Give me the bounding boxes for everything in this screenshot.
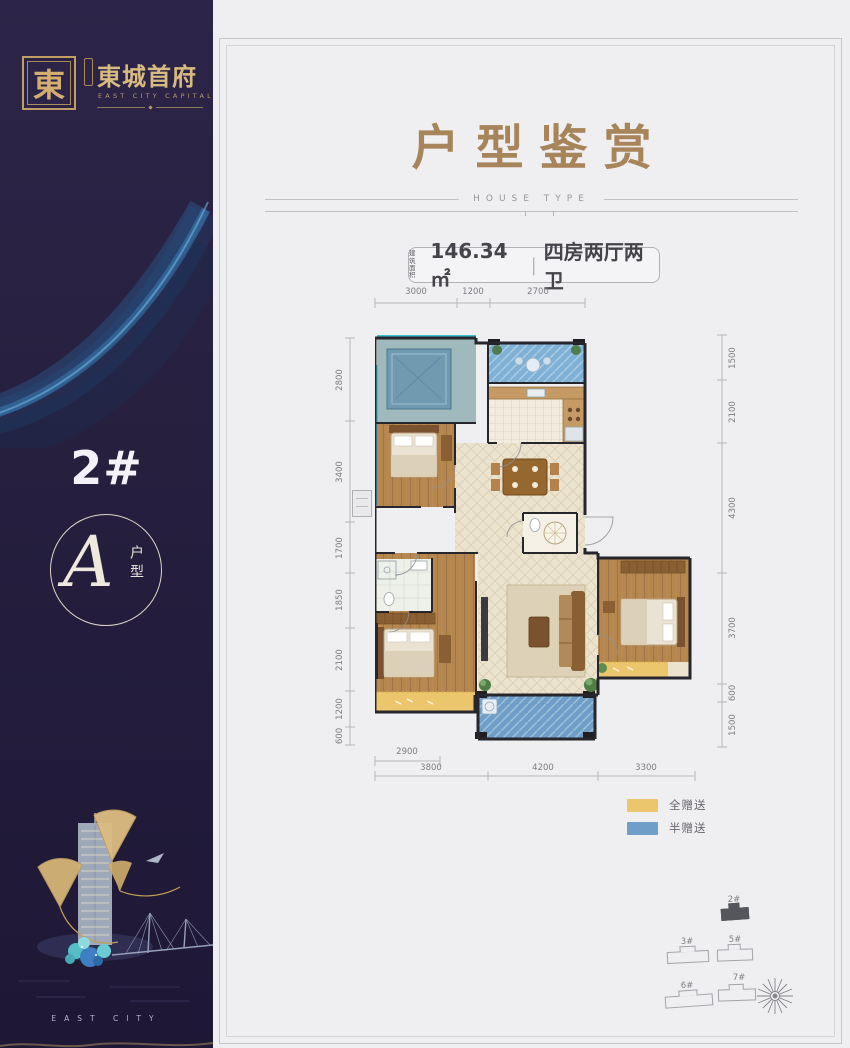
dim-label: 1200 xyxy=(335,698,345,720)
layout-description: 四房两厅两卫 xyxy=(544,236,659,294)
entry-door-arc xyxy=(585,517,613,545)
dim-label: 600 xyxy=(728,685,738,701)
brand-name-en: EAST CITY CAPITAL xyxy=(98,92,214,100)
feather-art xyxy=(0,118,213,448)
legend-row-full-gift: 全赠送 xyxy=(627,797,707,813)
dim-label: 1200 xyxy=(462,287,484,297)
unit-type-badge: A 户型 xyxy=(50,514,162,626)
subtitle-line-left xyxy=(265,199,459,200)
room-master-suite xyxy=(376,553,475,692)
dim-label: 4200 xyxy=(532,763,554,773)
ac-unit xyxy=(352,490,372,517)
dim-label: 3300 xyxy=(635,763,657,773)
subtitle-tick xyxy=(553,211,554,216)
page-title: 户型鉴赏 xyxy=(213,108,850,178)
area-value: 146.34㎡ xyxy=(430,239,523,292)
dim-label: 3700 xyxy=(728,617,738,639)
dim-label: 2100 xyxy=(335,649,345,671)
dim-label: 1500 xyxy=(728,714,738,736)
legend-swatch-half xyxy=(627,822,658,835)
seal-character: 東 xyxy=(33,60,65,106)
brand-name: 東城首府 xyxy=(97,57,207,92)
seal-side-tag xyxy=(84,58,93,86)
brand-tagline-divider xyxy=(97,106,203,109)
site-building-6 xyxy=(665,993,714,1008)
dim-label: 600 xyxy=(335,728,345,744)
dim-label: 3000 xyxy=(405,287,427,297)
sidebar-footer-caption: EAST CITY xyxy=(0,1014,213,1023)
area-badge: 建筑 面积 146.34㎡ | 四房两厅两卫 xyxy=(408,247,660,283)
dim-label: 4300 xyxy=(728,497,738,519)
legend-label-half: 半赠送 xyxy=(669,820,707,836)
gift-area-full-left xyxy=(376,692,475,712)
subtitle-tick xyxy=(525,211,526,216)
subtitle-underline xyxy=(265,211,798,212)
footer-gold-wave xyxy=(0,1040,213,1048)
room-kitchen xyxy=(488,387,585,443)
site-building-label: 7# xyxy=(733,973,746,983)
dim-label: 2800 xyxy=(335,369,345,391)
area-separator: | xyxy=(531,255,537,276)
site-map: 2# 3# 5# 6# 7# xyxy=(653,882,823,1017)
sidebar: 東 東城首府 EAST CITY CAPITAL 2# A 户型 xyxy=(0,0,213,1048)
subtitle-row: HOUSE TYPE xyxy=(265,194,798,204)
area-prefix-line2: 面积 xyxy=(409,265,423,280)
poster-root: 東 東城首府 EAST CITY CAPITAL 2# A 户型 xyxy=(0,0,850,1048)
dim-label: 1700 xyxy=(335,537,345,559)
legend-label-full: 全赠送 xyxy=(669,797,707,813)
unit-letter: A xyxy=(63,517,114,608)
legend-row-half-gift: 半赠送 xyxy=(627,820,707,836)
dim-label: 3400 xyxy=(335,461,345,483)
compass-icon xyxy=(755,976,795,1016)
page-subtitle: HOUSE TYPE xyxy=(473,194,590,204)
brand-seal-icon: 東 xyxy=(22,56,76,110)
room-bedroom-right xyxy=(598,558,690,678)
unit-suffix: 户型 xyxy=(126,545,146,583)
floor-plan xyxy=(375,335,700,747)
dim-label: 3800 xyxy=(420,763,442,773)
legend-swatch-full xyxy=(627,799,658,812)
room-bathroom-center xyxy=(523,513,577,553)
dim-label: 2700 xyxy=(527,287,549,297)
dim-label: 1500 xyxy=(728,347,738,369)
building-number: 2# xyxy=(0,441,213,495)
room-terrace-top-right xyxy=(488,339,585,383)
dim-label: 1850 xyxy=(335,589,345,611)
subtitle-line-right xyxy=(604,199,798,200)
room-balcony-bottom xyxy=(475,691,595,739)
site-building-5 xyxy=(717,948,753,961)
main-panel: 户型鉴赏 HOUSE TYPE 建筑 面积 146.34㎡ | 四房两厅两卫 xyxy=(213,0,850,1048)
building-night-art xyxy=(0,795,213,1020)
room-bedroom-top-left xyxy=(377,423,455,507)
gift-area-full-right xyxy=(598,662,668,678)
dim-label: 2900 xyxy=(396,747,418,757)
area-prefix-line1: 建筑 xyxy=(409,250,423,265)
room-living xyxy=(478,553,598,695)
site-building-3 xyxy=(667,950,710,964)
area-badge-prefix: 建筑 面积 xyxy=(409,250,423,280)
site-building-2 xyxy=(721,907,750,921)
site-building-7 xyxy=(718,988,756,1001)
dim-label: 2100 xyxy=(728,401,738,423)
